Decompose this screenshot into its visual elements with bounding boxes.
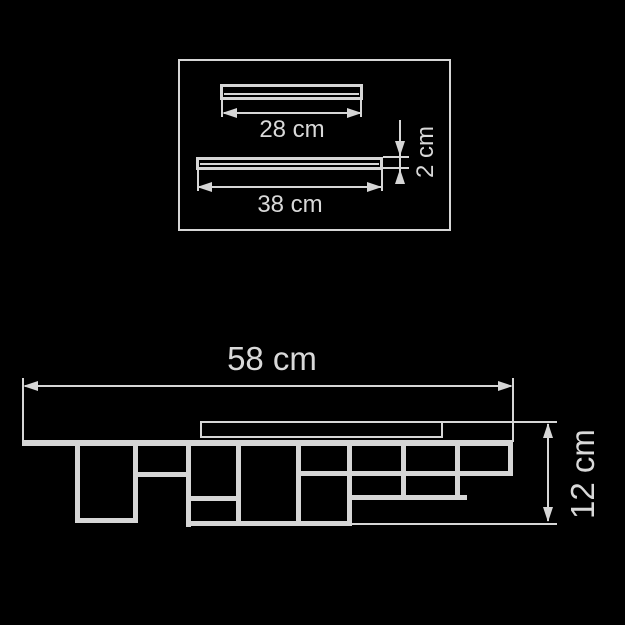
dim-38-label: 38 cm	[200, 191, 380, 219]
fixture-vline-1	[75, 446, 80, 523]
top-view-lower-bar	[196, 157, 383, 170]
fixture-vline-3	[186, 446, 191, 527]
dim-12-arrow-up-icon	[543, 423, 553, 438]
top-view-upper-bar	[220, 84, 363, 100]
dim-2-arrow-up-icon	[395, 169, 405, 184]
fixture-divider-mid	[186, 496, 241, 501]
dim-12-ext-bottom	[352, 523, 557, 525]
lower-bar-inner-line	[200, 163, 379, 165]
dim-58-arrow-right-icon	[498, 381, 513, 391]
fixture-bottom-center	[186, 521, 352, 526]
upper-bar-inner-line	[224, 93, 359, 95]
fixture-divider-right	[296, 471, 513, 476]
dim-38-line	[199, 186, 381, 188]
technical-drawing-canvas: 28 cm 38 cm 2 cm 58 cm 12 cm	[0, 0, 625, 625]
dim-28-line	[224, 112, 360, 114]
fixture-vline-2	[133, 446, 138, 522]
fixture-vline-4	[236, 446, 241, 526]
dim-12-ext-top	[443, 421, 557, 423]
dim-2-label: 2 cm	[412, 107, 440, 197]
fixture-back-panel	[200, 421, 443, 438]
fixture-vline-5	[296, 446, 301, 526]
fixture-bottom-left	[75, 518, 138, 523]
dim-58-line	[25, 385, 511, 387]
dim-12-arrow-down-icon	[543, 507, 553, 522]
dim-2-tick-top	[383, 156, 409, 158]
dim-58-label: 58 cm	[172, 340, 372, 378]
dim-2-arrow-down-icon	[395, 141, 405, 156]
dim-28-label: 28 cm	[222, 116, 362, 144]
fixture-shelf-right	[351, 495, 467, 500]
fixture-vline-6	[347, 446, 352, 526]
dim-58-arrow-left-icon	[23, 381, 38, 391]
dim-12-label: 12 cm	[564, 414, 602, 534]
fixture-divider-left	[133, 472, 191, 477]
fixture-ceiling-bar	[22, 440, 513, 446]
